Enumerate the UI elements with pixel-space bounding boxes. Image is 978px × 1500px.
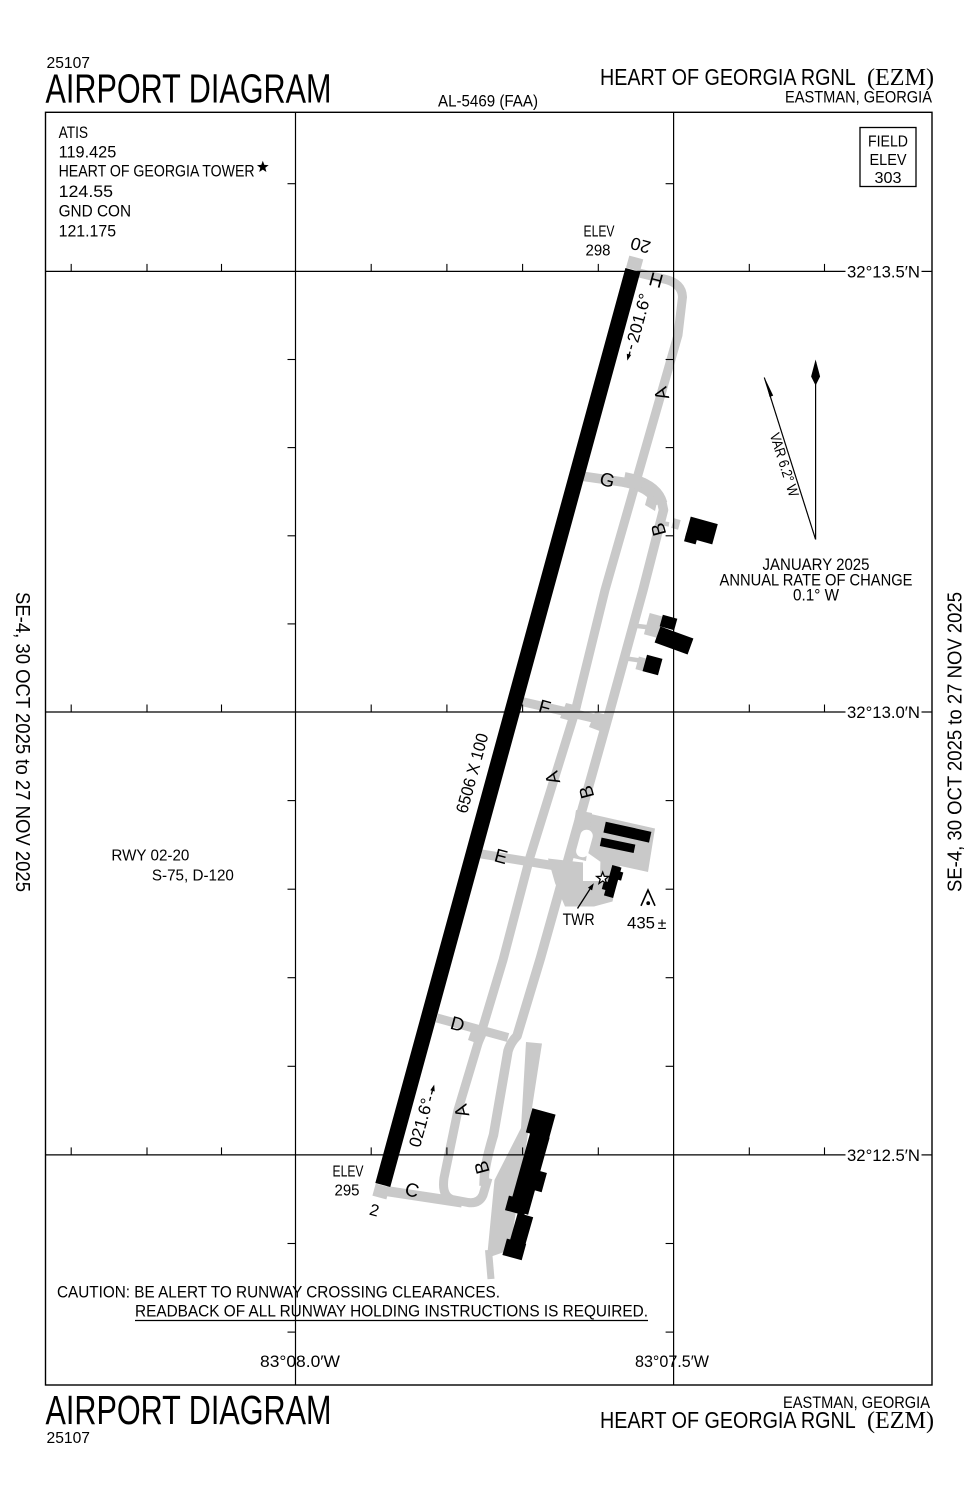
svg-text:124.55: 124.55 (59, 182, 113, 201)
svg-text:SE-4, 30 OCT 2025 to 27 NOV: SE-4, 30 OCT 2025 to 27 NOV 2025 (11, 592, 33, 892)
svg-text:FIELD: FIELD (868, 134, 908, 151)
svg-text:435: 435 (627, 914, 655, 933)
svg-text:TWR: TWR (563, 911, 595, 929)
svg-text:83°08.0′W: 83°08.0′W (260, 1352, 340, 1371)
svg-text:25107: 25107 (47, 1430, 91, 1447)
svg-text:0.1° W: 0.1° W (793, 586, 839, 604)
svg-text:AIRPORT DIAGRAM: AIRPORT DIAGRAM (46, 1387, 332, 1433)
svg-text:32°13.0′N: 32°13.0′N (847, 703, 920, 722)
svg-text:ATIS: ATIS (59, 123, 89, 142)
svg-text:HEART OF GEORGIA TOWER: HEART OF GEORGIA TOWER (59, 162, 255, 181)
svg-text:±: ± (658, 916, 667, 933)
svg-text:121.175: 121.175 (59, 222, 117, 241)
svg-text:119.425: 119.425 (59, 143, 117, 162)
svg-text:GND CON: GND CON (59, 202, 132, 221)
svg-text:32°13.5′N: 32°13.5′N (847, 263, 920, 282)
svg-text:S-75, D-120: S-75, D-120 (152, 868, 234, 885)
svg-text:HEART OF GEORGIA RGNL (EZM): HEART OF GEORGIA RGNL (EZM) (600, 64, 934, 91)
svg-text:32°12.5′N: 32°12.5′N (847, 1146, 920, 1165)
svg-text:AL-5469 (FAA): AL-5469 (FAA) (438, 93, 538, 111)
svg-text:303: 303 (875, 170, 902, 187)
svg-text:HEART OF GEORGIA RGNL (EZM): HEART OF GEORGIA RGNL (EZM) (600, 1407, 934, 1434)
svg-text:ELEV: ELEV (584, 224, 615, 241)
svg-text:298: 298 (586, 243, 611, 260)
svg-text:AIRPORT DIAGRAM: AIRPORT DIAGRAM (46, 66, 332, 112)
svg-text:295: 295 (335, 1183, 360, 1200)
svg-text:83°07.5′W: 83°07.5′W (635, 1352, 709, 1371)
svg-text:EASTMAN, GEORGIA: EASTMAN, GEORGIA (785, 89, 932, 107)
svg-text:READBACK OF ALL RUNWAY HOLDING: READBACK OF ALL RUNWAY HOLDING INSTRUCTI… (135, 1303, 648, 1321)
svg-text:ELEV: ELEV (333, 1164, 364, 1181)
svg-text:RWY 02-20: RWY 02-20 (111, 847, 189, 864)
svg-text:ELEV: ELEV (870, 152, 908, 169)
svg-text:SE-4, 30 OCT 2025 to 27 NOV: SE-4, 30 OCT 2025 to 27 NOV 2025 (945, 592, 967, 892)
svg-text:CAUTION: BE ALERT TO RUNWAY CR: CAUTION: BE ALERT TO RUNWAY CROSSING CLE… (57, 1284, 500, 1302)
